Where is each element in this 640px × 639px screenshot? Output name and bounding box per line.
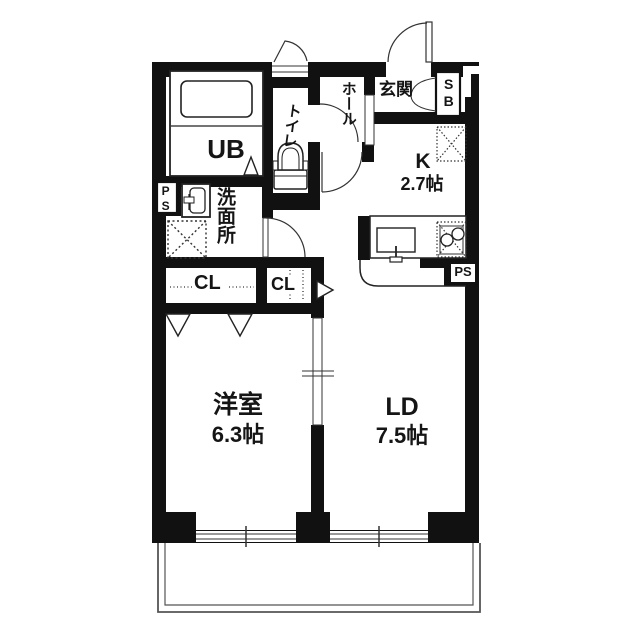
kitchen-label: K — [405, 151, 441, 173]
hall-label: ホール — [340, 81, 356, 126]
living-dining-size: 7.5帖 — [370, 424, 434, 447]
washstand-icon — [182, 184, 210, 217]
washroom-label: 洗面所 — [214, 187, 234, 244]
toilet-icon — [273, 143, 308, 189]
entrance-step — [365, 95, 374, 145]
floorplan-drawing — [0, 0, 640, 639]
washer-space-icon — [168, 221, 206, 258]
western-room-label: 洋室 — [206, 392, 270, 418]
toilet-window — [272, 41, 308, 77]
window-living-dining — [330, 526, 428, 547]
pipe-space-bottom-label: PS — [451, 265, 475, 279]
closet-main-label: CL — [192, 273, 223, 294]
kitchen-size: 2.7帖 — [394, 175, 450, 194]
closet-side-label: CL — [269, 275, 297, 294]
bathtub-icon — [181, 81, 252, 117]
window-west-room — [196, 526, 296, 547]
shoebox-door-arcs — [411, 78, 436, 111]
sliding-door-divider — [302, 318, 334, 425]
closet-open-arrow — [317, 281, 333, 299]
living-dining-label: LD — [376, 394, 428, 420]
shoe-box-label: SB — [441, 76, 456, 110]
unit-bath-label: UB — [200, 136, 252, 163]
hall-door-arc — [322, 152, 362, 192]
entrance-door — [386, 22, 432, 77]
pipe-space-top-label: PS — [159, 184, 172, 214]
entrance-label: 玄関 — [379, 81, 413, 99]
balcony — [158, 543, 480, 612]
washroom-door-arc — [263, 218, 305, 257]
floorplan: UB PS 洗面所 トイレ ホール 玄関 SB K 2.7帖 PS CL CL … — [0, 0, 640, 639]
western-room-size: 6.3帖 — [202, 423, 274, 446]
fridge-space-icon — [437, 127, 466, 161]
wall-notch — [463, 66, 479, 97]
closet-fold-door-triangles — [166, 314, 252, 336]
